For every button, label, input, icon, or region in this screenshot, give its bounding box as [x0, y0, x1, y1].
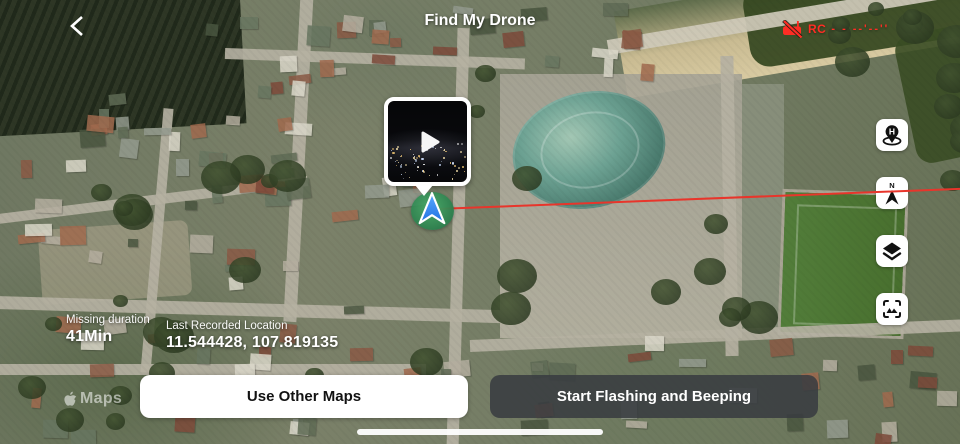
maps-watermark: Maps — [64, 390, 122, 408]
home-point-button[interactable]: H — [876, 119, 908, 151]
center-focus-button[interactable] — [876, 293, 908, 325]
callout-tail — [415, 185, 433, 196]
rc-label: RC — [808, 22, 826, 36]
signal-bars-dashes: --'--'' — [853, 23, 890, 35]
video-preview-callout[interactable] — [384, 97, 471, 186]
layers-button[interactable] — [876, 235, 908, 267]
last-location-block: Last Recorded Location 11.544428, 107.81… — [166, 320, 338, 352]
last-location-label: Last Recorded Location — [166, 320, 338, 332]
rc-status: RC - - --'--'' — [781, 20, 889, 38]
svg-text:H: H — [889, 127, 895, 137]
rc-disconnected-icon — [781, 20, 803, 38]
play-icon — [413, 127, 443, 157]
watermark-label: Maps — [80, 390, 122, 408]
last-location-value: 11.544428, 107.819135 — [166, 334, 338, 352]
home-indicator[interactable] — [357, 429, 603, 435]
compass-north-icon: N — [880, 180, 904, 206]
start-flashing-button[interactable]: Start Flashing and Beeping — [490, 375, 818, 418]
use-other-maps-button[interactable]: Use Other Maps — [140, 375, 468, 418]
missing-duration-block: Missing duration 41Min — [66, 314, 150, 346]
map-controls: H N — [876, 119, 908, 325]
find-my-drone-screen: Find My Drone RC - - --'--'' H N — [0, 0, 960, 444]
missing-duration-value: 41Min — [66, 328, 150, 346]
center-focus-icon — [880, 297, 904, 321]
home-point-icon: H — [880, 123, 904, 147]
svg-text:N: N — [889, 181, 894, 190]
compass-button[interactable]: N — [876, 177, 908, 209]
video-thumbnail — [384, 97, 471, 186]
layers-icon — [880, 239, 904, 263]
apple-logo-icon — [64, 391, 77, 407]
missing-duration-label: Missing duration — [66, 314, 150, 326]
rc-signal-dashes: - - — [831, 23, 847, 35]
drone-location-marker — [411, 192, 454, 230]
